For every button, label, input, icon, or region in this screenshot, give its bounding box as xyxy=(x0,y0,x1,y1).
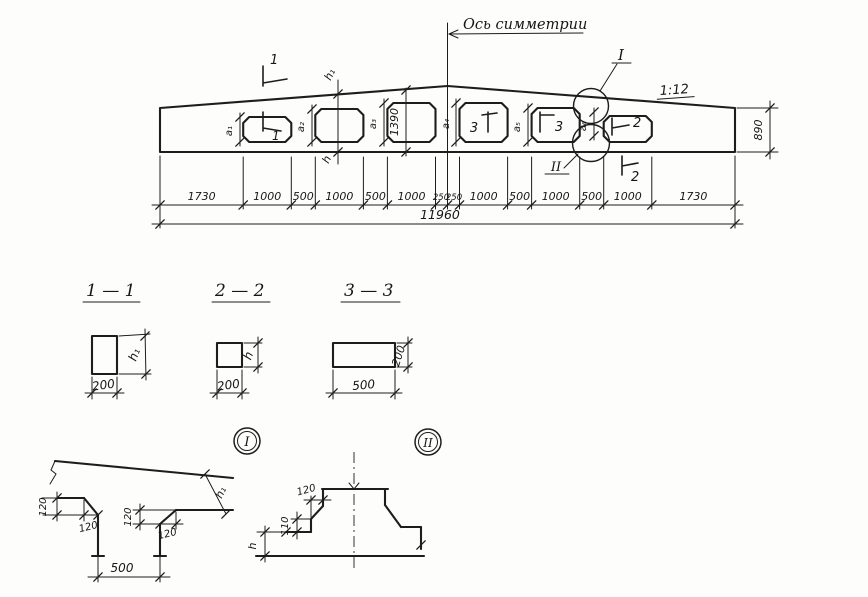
width-dim: 200 xyxy=(216,376,241,393)
dim-seg: 500 xyxy=(293,190,314,203)
opening-4 xyxy=(460,103,508,142)
section-2-2: 2 — 2 200 h xyxy=(210,281,270,399)
dim-seg: 1000 xyxy=(398,190,426,203)
section-cut-3-opening5: 3 xyxy=(540,112,563,135)
dim-seg: 1000 xyxy=(470,190,498,203)
detail-ref-badge-II: II xyxy=(415,429,441,455)
svg-text:120: 120 xyxy=(296,483,317,499)
svg-text:500: 500 xyxy=(111,561,134,575)
dim-top-120: 120 xyxy=(296,483,331,504)
opening-dim-a2: а₂ xyxy=(296,105,316,146)
opening-dim-a6: а₆ xyxy=(578,108,598,140)
section-title: 2 — 2 xyxy=(214,281,264,301)
svg-text:110: 110 xyxy=(280,516,291,535)
width-dim: 500 xyxy=(352,377,376,393)
dimension-row-total: 11960 xyxy=(152,207,743,228)
dim-width-500: 500 xyxy=(88,561,170,581)
section-profile xyxy=(217,343,242,367)
cut-label: 2 xyxy=(633,116,641,131)
blueprint-sheet: Ось симметрии 1 1 3 3 xyxy=(0,0,868,597)
section-profile xyxy=(333,343,395,367)
opening-2 xyxy=(315,109,363,142)
dim-total: 11960 xyxy=(420,207,460,222)
cut-label: 2 xyxy=(631,170,639,185)
svg-text:а₃: а₃ xyxy=(368,119,379,129)
left-chamfer xyxy=(311,506,323,519)
dim-height-right: 890 xyxy=(737,101,778,159)
beam-elevation: Ось симметрии 1 1 3 3 xyxy=(152,17,778,228)
cut-label: 1 xyxy=(272,129,280,143)
dim-seg: 1730 xyxy=(679,190,707,203)
detail-circle-I xyxy=(574,89,609,124)
svg-text:а₄: а₄ xyxy=(441,119,452,129)
axis-of-symmetry-label: Ось симметрии xyxy=(463,17,587,33)
dim-flange-120: 120 xyxy=(38,492,61,521)
opening-dim-a1: а₁ xyxy=(224,113,244,146)
opening-dim-a4: а₄ xyxy=(441,99,460,146)
svg-text:h₁: h₁ xyxy=(213,485,230,501)
h-label: h xyxy=(319,154,334,166)
section-3-3: 3 — 3 500 200 xyxy=(326,281,412,399)
break-mark xyxy=(50,461,56,484)
svg-text:I: I xyxy=(243,435,250,450)
dim-height-center: 1390 xyxy=(388,86,410,156)
dim-h1-h: h₁ h xyxy=(319,67,342,166)
svg-text:а₂: а₂ xyxy=(296,122,307,132)
svg-text:1:12: 1:12 xyxy=(659,82,689,99)
section-1-1: 1 — 1 200 h₁ xyxy=(83,281,151,399)
dim-seg: 500 xyxy=(581,190,602,203)
dim-web-120: 120 xyxy=(123,504,144,530)
dim-seg: 1000 xyxy=(253,190,281,203)
axis-arrowhead-icon xyxy=(449,30,458,34)
section-title: 3 — 3 xyxy=(344,281,393,301)
dim-seg: 500 xyxy=(365,190,386,203)
dim-seg: 1000 xyxy=(325,190,353,203)
section-cut-2-opening6: 2 xyxy=(612,116,641,135)
leader-line-II xyxy=(564,154,578,168)
detail-II: II 120 110 h xyxy=(246,429,441,572)
height-dim: 200 xyxy=(389,344,408,368)
cross-sections: 1 — 1 200 h₁ 2 — 2 200 h xyxy=(83,281,412,399)
slope-label: 1:12 xyxy=(656,82,694,100)
cut-label: 3 xyxy=(470,121,478,136)
dim-seg: 1730 xyxy=(188,190,216,203)
section-profile xyxy=(92,336,117,374)
section-cut-3-opening4: 3 xyxy=(470,112,497,136)
right-chamfer xyxy=(385,505,401,527)
opening-dim-a5: а₅ xyxy=(512,104,532,146)
dim-seg: 1000 xyxy=(542,190,570,203)
leader-line-I xyxy=(600,64,617,91)
cut-label: 1 xyxy=(270,53,278,68)
svg-text:120: 120 xyxy=(123,507,134,526)
svg-text:II: II xyxy=(422,436,433,450)
h1-label: h₁ xyxy=(322,67,339,83)
dim-seg: 1000 xyxy=(614,190,642,203)
svg-text:890: 890 xyxy=(752,120,765,141)
dim-seg: 250 xyxy=(446,193,462,203)
section-title: 1 — 1 xyxy=(86,281,135,301)
detail-ref-I: I xyxy=(617,46,625,64)
dim-side-110: 110 xyxy=(280,512,301,539)
svg-text:120: 120 xyxy=(38,497,49,516)
cut-label: 3 xyxy=(555,120,563,135)
svg-text:h: h xyxy=(246,542,259,549)
svg-text:а₆: а₆ xyxy=(578,121,589,131)
dim-seg: 500 xyxy=(509,190,530,203)
detail-ref-badge-I: I xyxy=(234,428,260,454)
detail-I: I 120 120 120 xyxy=(38,428,260,582)
height-dim: h₁ xyxy=(126,346,143,363)
detail-ref-II: II xyxy=(550,160,562,175)
opening-dim-a3: а₃ xyxy=(368,99,388,146)
section-cut-1-top: 1 xyxy=(263,53,287,86)
svg-text:1390: 1390 xyxy=(388,108,401,136)
width-dim: 200 xyxy=(91,376,116,393)
svg-text:а₁: а₁ xyxy=(224,126,235,136)
svg-text:120: 120 xyxy=(78,520,99,535)
technical-drawing: Ось симметрии 1 1 3 3 xyxy=(0,0,868,597)
opening-6 xyxy=(604,116,652,142)
svg-text:а₅: а₅ xyxy=(512,122,523,132)
section-cut-2-below: 2 xyxy=(622,156,639,185)
